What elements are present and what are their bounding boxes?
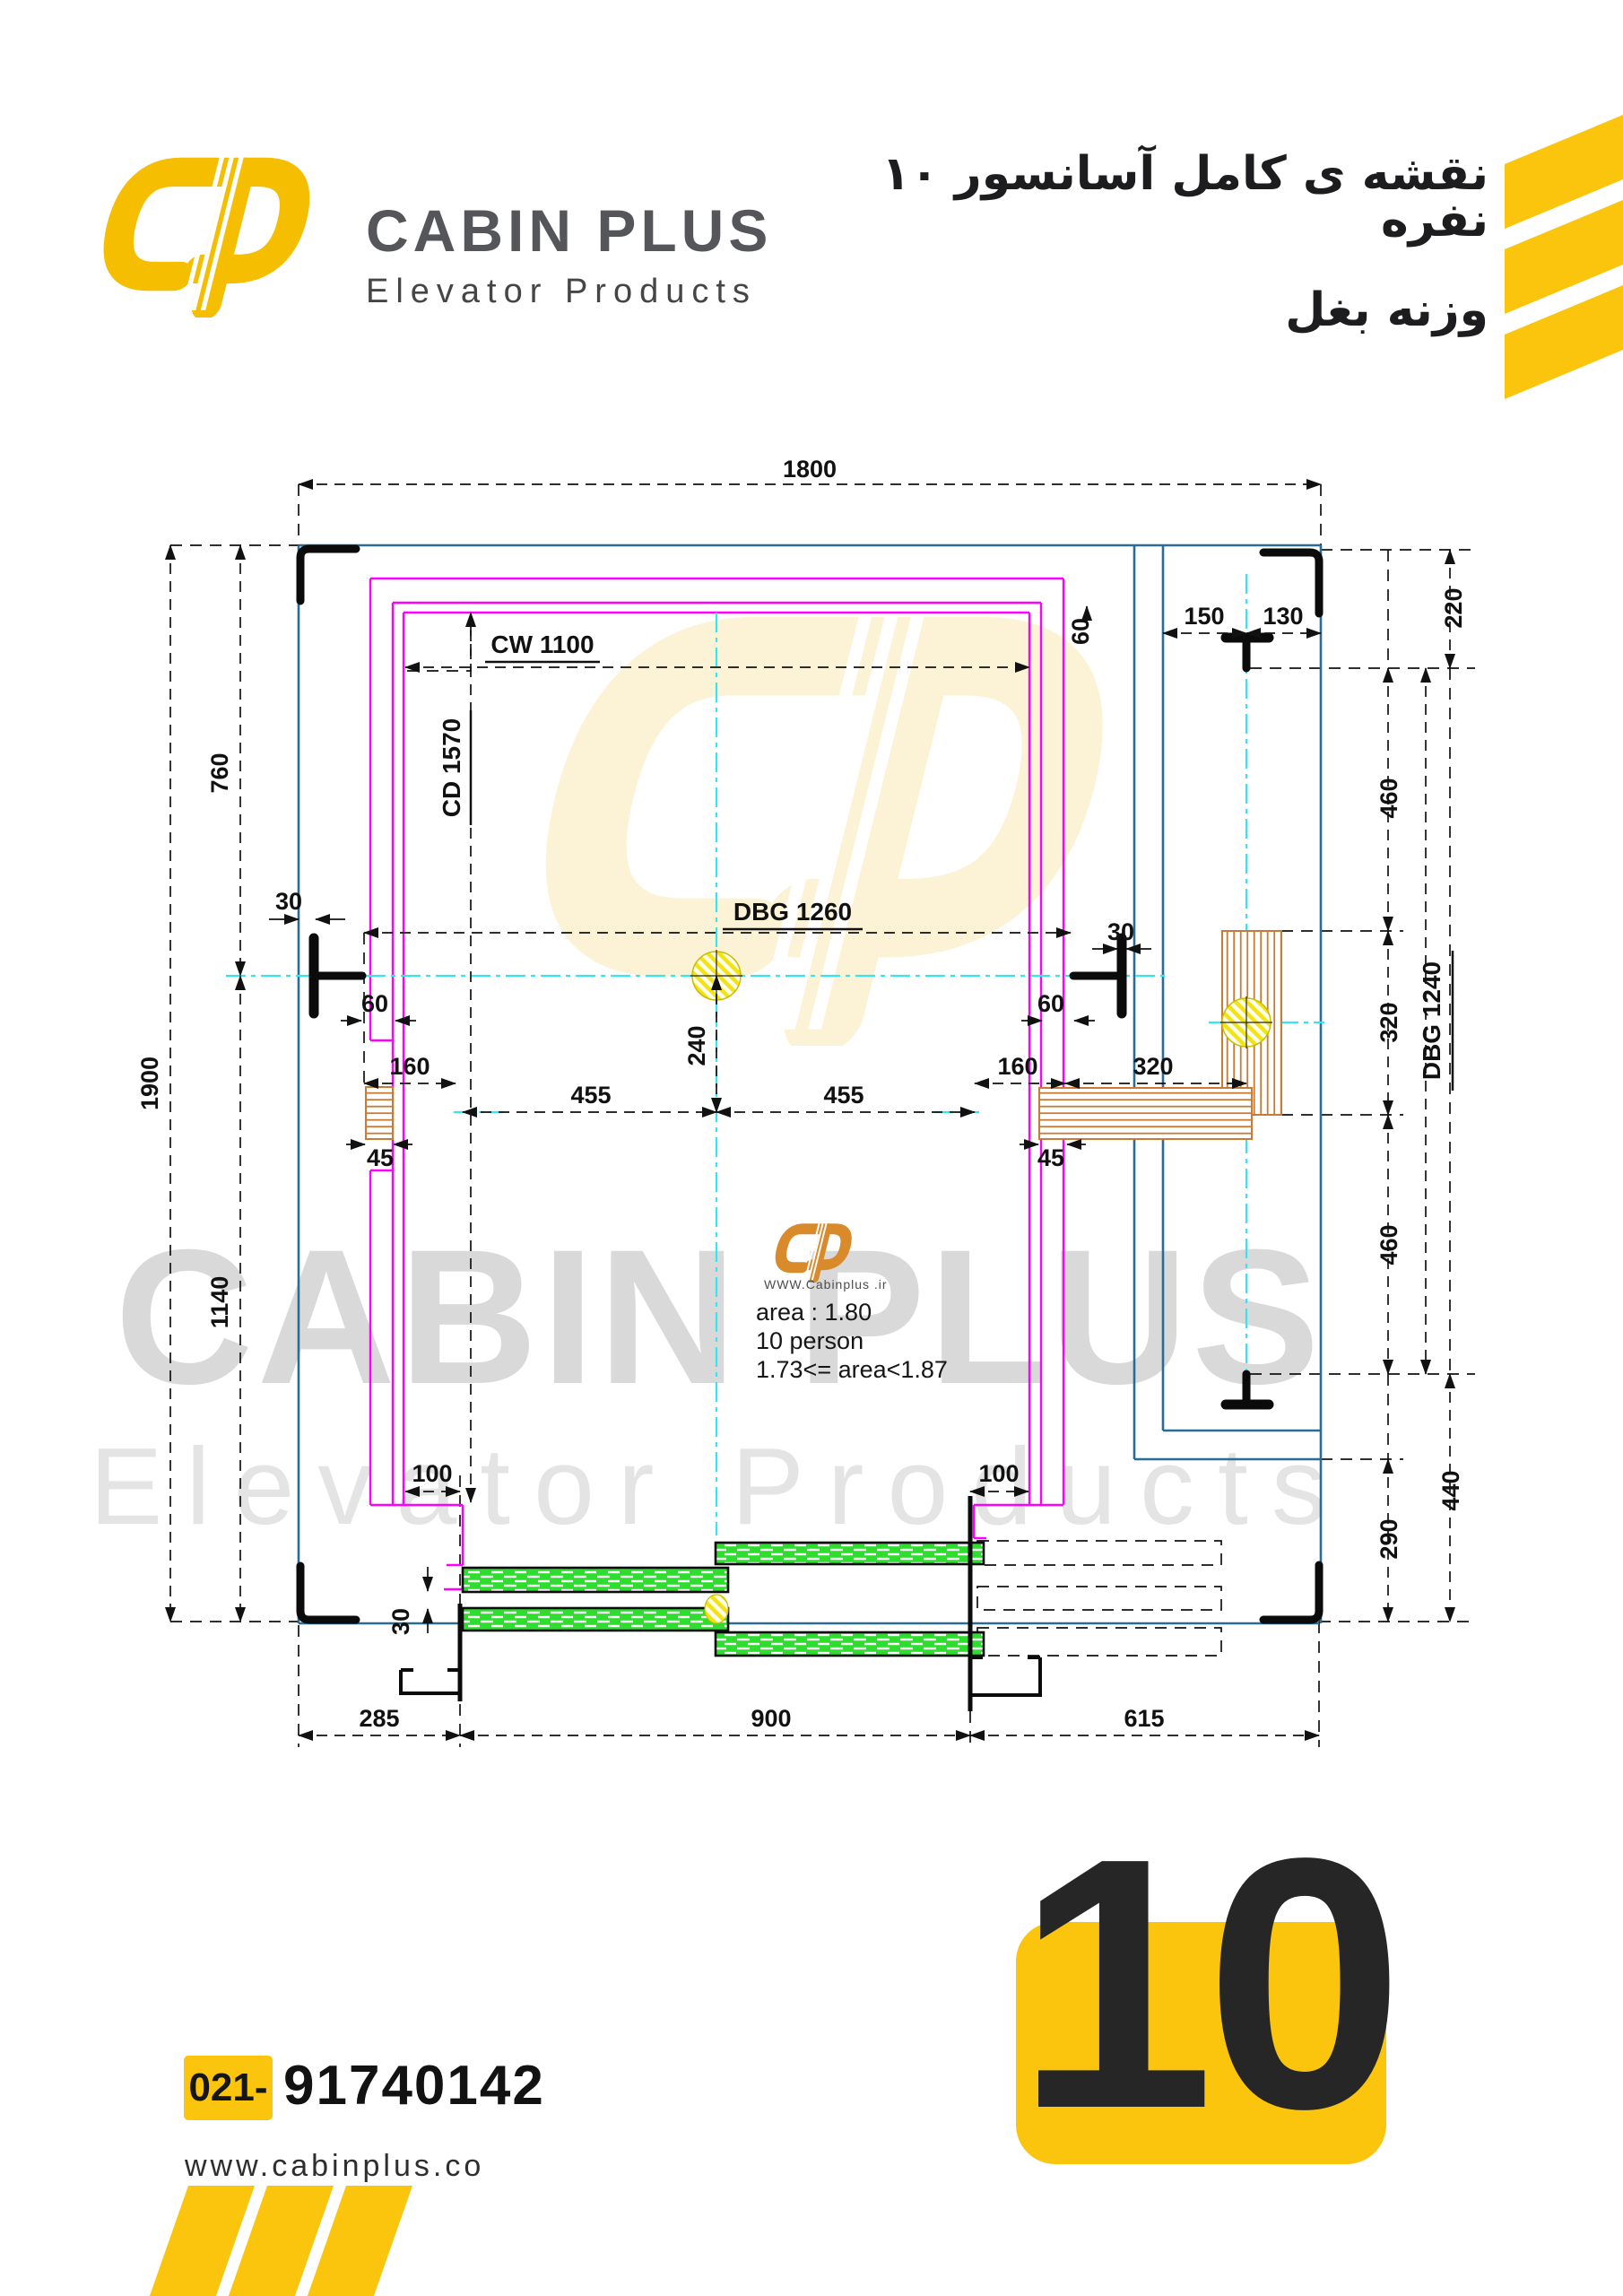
dim-45-right: 45 [1037,1144,1064,1171]
dim-right-220: 220 [1440,587,1467,628]
cp-logo-small-icon [768,1213,857,1283]
dim-60-top: 60 [1067,618,1094,645]
dim-60-right: 60 [1037,990,1064,1017]
dim-160-right: 160 [997,1053,1037,1080]
website-url: www.cabinplus.co [185,2149,484,2184]
label-dbg-car: DBG 1260 [733,898,852,926]
dim-cwt-150: 150 [1184,603,1224,630]
dim-right-290: 290 [1376,1518,1402,1559]
dim-door-left: 285 [359,1705,399,1732]
dim-100-right: 100 [978,1460,1019,1487]
dim-rail-30-left: 30 [275,888,302,915]
dim-160-left: 160 [389,1053,430,1080]
cabin-persons: 10 person [756,1327,948,1356]
dim-sill-gap-30: 30 [387,1608,414,1635]
dim-45-left: 45 [367,1144,394,1171]
dim-left-top: 760 [206,752,233,793]
cabin-area-range: 1.73<= area<1.87 [756,1356,948,1385]
dim-left-bottom: 1140 [206,1276,233,1329]
center-logo-site: WWW.Cabinplus .ir [764,1277,888,1291]
dim-60-left: 60 [361,990,388,1017]
dim-240: 240 [683,1025,710,1065]
dim-cwt-130: 130 [1263,603,1303,630]
dim-100-left: 100 [412,1460,452,1487]
dim-door-right: 615 [1124,1705,1164,1732]
dim-door-width: 900 [751,1705,791,1732]
dim-shaft-width: 1800 [783,456,837,483]
label-cabin-depth: CD 1570 [438,718,465,818]
phone-number: 91740142 [283,2054,545,2118]
page: CABIN PLUS Elevator Products نقشه ی کامل… [0,0,1623,2296]
dim-right-460a: 460 [1376,778,1402,818]
dim-455-right: 455 [823,1082,864,1109]
dim-right-440: 440 [1437,1470,1464,1510]
dim-right-320: 320 [1376,1002,1402,1042]
label-dbg-counterweight: DBG 1240 [1418,961,1445,1080]
phone-area-code: 021- [184,2056,273,2120]
cabin-info-block: area : 1.80 10 person 1.73<= area<1.87 [756,1299,948,1385]
dim-455-left: 455 [570,1082,611,1109]
dim-rail-30-right: 30 [1107,918,1134,945]
dim-shaft-depth: 1900 [136,1057,163,1110]
label-cabin-width: CW 1100 [490,631,594,658]
dim-320-horizontal: 320 [1133,1053,1173,1080]
cabin-area: area : 1.80 [756,1299,948,1327]
dim-right-460b: 460 [1376,1224,1402,1265]
capacity-number: 10 [1016,1813,1386,2154]
